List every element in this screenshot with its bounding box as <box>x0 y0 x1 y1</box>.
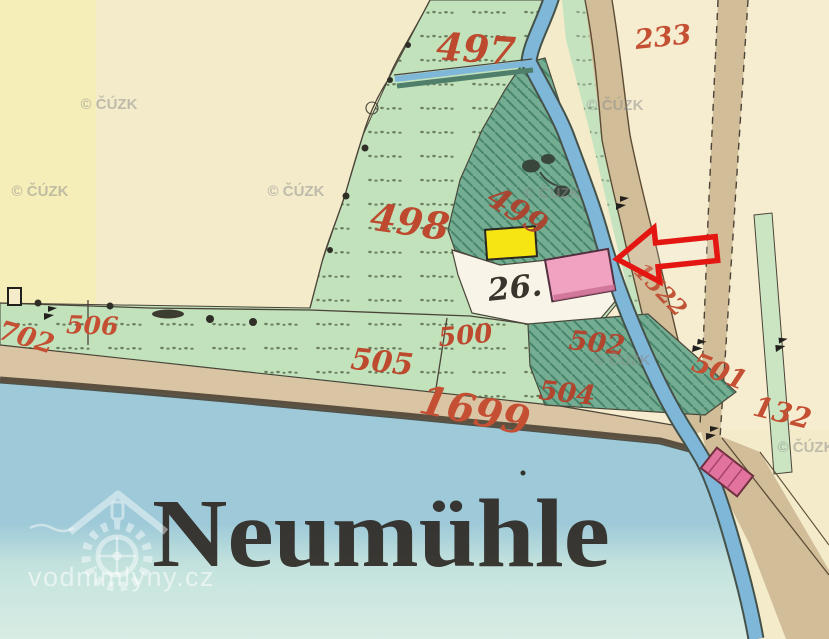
parcel-label-504: 504 <box>537 375 596 412</box>
cuzk-watermark: © ČÚZK <box>587 96 644 114</box>
place-name-label: Neumühle <box>152 480 610 588</box>
cuzk-watermark: © ČÚZK <box>778 438 829 456</box>
parcel-label-26: 26. <box>485 267 543 309</box>
cuzk-watermark: © ČÚZK <box>81 95 138 113</box>
parcel-label-500: 500 <box>437 319 494 354</box>
parcel-label-505: 505 <box>349 342 415 383</box>
cadastral-map-canvas: 4972334984995005015025045055067021699152… <box>0 0 829 639</box>
cuzk-watermark: © ČÚZK <box>12 182 69 200</box>
parcel-label-506: 506 <box>66 310 119 341</box>
cuzk-watermark: © ČÚZK <box>268 182 325 200</box>
cuzk-watermark: © ČÚZK <box>594 351 651 369</box>
parcel-label-497: 497 <box>435 23 517 73</box>
site-watermark-text: vodnimlyny.cz <box>28 562 215 592</box>
map-screenshot: 4972334984995005015025045055067021699152… <box>0 0 829 639</box>
small-building-outline <box>8 288 21 305</box>
cuzk-watermark: © ČÚZK <box>524 184 581 202</box>
parcel-label-233: 233 <box>632 19 692 56</box>
